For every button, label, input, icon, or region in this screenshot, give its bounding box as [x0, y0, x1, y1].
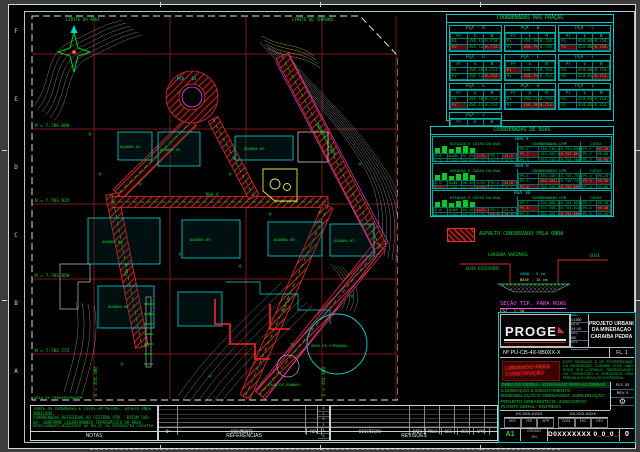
- rua-cell: PV-8: [489, 213, 503, 215]
- title-side-column: FLS. 03REV. 0⚙: [610, 382, 634, 410]
- revisoes-rows: [331, 406, 497, 427]
- stamp-cells: DATAESCREV: [558, 418, 608, 428]
- praca-cell: 354.728,15: [467, 45, 484, 51]
- site-plan-svg: LIMITE DA ÁREALIMITE DO TERRENOPÇA - 01Q…: [30, 14, 398, 402]
- rua-cell: 354.302,90: [539, 201, 559, 206]
- praca-table-values: PTENP1354.712,408.754.061,22P2354.728,15…: [450, 33, 501, 51]
- rua-cell: 1+00: [447, 213, 461, 215]
- map-label: LIMITE DO TERRENO: [292, 17, 334, 22]
- rua-mid-row: PV-1354.210,458.753.850,12: [519, 147, 580, 152]
- rua-mid-table: PV-7354.302,908.753.655,28PV-8354.348,35…: [518, 200, 580, 215]
- notas-lines: TODAS AS DIMENSÕES E COTAS EM METROS, EX…: [33, 407, 155, 427]
- stake-glyph: [442, 173, 447, 180]
- rua-cell: 354.158,72: [539, 174, 559, 179]
- rua-cell: 93,65: [596, 211, 611, 215]
- proge-logo-mark: ◣: [558, 325, 564, 334]
- rua-cell: 96,20: [461, 181, 475, 186]
- map-label: QUADRA 01: [120, 144, 141, 149]
- map-label: QUADRA 06: [274, 237, 295, 242]
- praca-cell: 354.848,12: [576, 39, 593, 45]
- praca-data-row: P2354.728,158.754.048,90: [451, 45, 501, 51]
- stamp-group: XX-XXX-XXXXDATAESCREV: [558, 411, 608, 428]
- rua-cell: PV-5: [489, 186, 503, 188]
- fold-tick: [635, 150, 640, 151]
- stake-glyph: [456, 201, 461, 207]
- praca-table-values: PTENP1354.702,178.753.910,58P2354.716,93…: [450, 90, 501, 108]
- rua-cell: i=2%: [475, 159, 489, 161]
- stake-glyphs: [433, 146, 517, 153]
- rua-section-body: ESTACAS E COTAS DA RUAE-00+0097,45i=2%PV…: [433, 142, 611, 161]
- stake-glyph: [442, 200, 447, 207]
- rua-cell: i=2%: [475, 213, 489, 215]
- praca-cell: 8.753.896,30: [484, 102, 501, 108]
- rua-cell: 8.753.792,60: [559, 174, 579, 179]
- praca-cell: 8.754.066,45: [593, 39, 610, 45]
- praca-cell: 8.753.888,15: [593, 102, 610, 108]
- proge-logo: PROGE: [505, 324, 557, 339]
- praca-cell: 354.721,40: [467, 73, 484, 79]
- rua-mid-row: PV-4354.158,728.753.792,60: [519, 174, 580, 179]
- rua-cell: 8.753.698,41: [559, 184, 579, 188]
- praca-cell: 8.753.974,10: [484, 73, 501, 79]
- praca-cell: 8.754.070,18: [538, 39, 555, 45]
- praca-header-row: PTEN: [451, 62, 501, 68]
- map-label: QUADRA 07: [334, 238, 355, 243]
- ownership-note-box: ESTE DESENHO É DE PROPRIEDADE DA MINERAÇ…: [563, 360, 633, 381]
- rua-cell: 96,80: [461, 159, 475, 161]
- rua-cell: 8.753.566,17: [559, 211, 579, 215]
- stake-glyph: [456, 174, 461, 180]
- signature-stamps-row: XX-XXX-XXXXDESVERAPRXX-XXX-XXXXDATAESCRE…: [500, 410, 610, 428]
- frame-row-letter: C: [9, 232, 23, 239]
- praca-cell: 8.753.977,48: [538, 73, 555, 79]
- praca-cell: 354.795,02: [522, 45, 539, 51]
- code-cell: CÓDIGO GH: [521, 429, 548, 441]
- praca-data-row: P2354.790,118.753.977,48: [505, 73, 555, 79]
- praca-cell: P2: [560, 102, 577, 108]
- praca-header-row: PTEN: [451, 33, 501, 39]
- code-bottom: GH: [521, 435, 547, 441]
- praca-cell: 354.775,30: [522, 68, 539, 74]
- side-row: REV. 0: [611, 390, 634, 398]
- praca-header-row: PTEN: [505, 62, 555, 68]
- description-line: REMODELAÇÃO E DRENAGEM - EXPLORAÇÃO: [501, 393, 610, 399]
- rua-right-table: PV-496,20PV-595,55PV-694,80: [581, 173, 611, 188]
- stake-glyph: [449, 176, 454, 180]
- map-label: N = 7.784.000: [35, 123, 70, 129]
- street-section-svg: LARGURA VARIÁVEL GUIA EXISTENTE GUIA CBU…: [458, 248, 610, 300]
- stamp-cells: DESVERAPR: [504, 418, 554, 428]
- drawing-number: D0XXXXXXX 0_0_0_1: [548, 429, 619, 441]
- stamp-cell: DES: [504, 418, 521, 428]
- ruas-block-title: COORDENADAS DE RUAS: [431, 127, 613, 135]
- map-label: N = 7.783.775: [35, 348, 70, 354]
- description-line: OBRA DE PEDRA - EXPANSÃO PARA AS OBRAS: [501, 382, 610, 388]
- stake-glyph: [449, 203, 454, 207]
- proge-logo-box: PROGE ◣: [500, 314, 570, 347]
- stake-glyph: [470, 148, 475, 153]
- praca-cell: P2: [505, 45, 522, 51]
- rua-mid-row: PV-6354.250,638.753.698,41: [519, 184, 580, 188]
- rua-cell: PV-6: [582, 184, 597, 188]
- referencias-section: 543210 NºDOCUMENTOREV REFERÊNCIAS: [158, 405, 330, 441]
- rua-mid-row: PV-9354.393,818.753.566,17: [519, 211, 580, 215]
- asphalt-swatch-label: ASFALTO CONSERVADO PELA OBRA: [479, 231, 563, 237]
- praca-cell: 8.753.985,06: [593, 68, 610, 74]
- map-label: QUADRA 03: [244, 146, 265, 151]
- praca-coordinates-block: COORDENADAS DAS PRAÇAS PÇA - APTENP1354.…: [446, 14, 614, 121]
- praca-cell: 354.780,55: [522, 39, 539, 45]
- praca-table-values: PTENP1354.706,888.753.988,35P2354.721,40…: [450, 61, 501, 79]
- map-label: LIMITE DA ÁREA: [66, 17, 100, 22]
- title-info-column: ESC.1:1000DATAXX-XXDES.MCREV.0: [570, 314, 588, 347]
- title-footer-row: A1 CÓDIGO GH D0XXXXXXX 0_0_0_1 0: [500, 428, 634, 441]
- stake-glyph: [449, 149, 454, 153]
- praca-cell: 8.754.055,60: [538, 45, 555, 51]
- praca-cell: 354.843,95: [576, 68, 593, 74]
- rua-mid-row: PV-7354.302,908.753.655,28: [519, 201, 580, 206]
- stake-glyph: [456, 147, 461, 153]
- rua-cell: E-1: [434, 159, 448, 161]
- rua-left-sub: ESTACAS E COTAS DA RUAE-00+0096,20i=3%PV…: [433, 169, 517, 188]
- section-label-base: BASE - 15 cm: [520, 277, 548, 282]
- site-plan-map: LIMITE DA ÁREALIMITE DO TERRENOPÇA - 01Q…: [30, 14, 398, 402]
- section-label-left: GUIA EXISTENTE: [466, 266, 500, 271]
- rua-mid-row: PV-2354.265,808.753.801,34: [519, 152, 580, 157]
- logo-underline: [504, 339, 566, 341]
- rua-cell: 1+00: [447, 186, 461, 188]
- frame-row-letter: B: [9, 300, 23, 307]
- stamp-group: XX-XXX-XXXXDESVERAPR: [504, 411, 554, 428]
- stake-glyph: [442, 146, 447, 153]
- rua-cell: 8.753.655,28: [559, 201, 579, 206]
- rua-section-body: ESTACAS E COTAS DA RUAE-00+0095,10i=2%PV…: [433, 196, 611, 215]
- praca-block-title: COORDENADAS DAS PRAÇAS: [447, 15, 613, 23]
- rua-cell: 354.250,63: [539, 184, 559, 188]
- praca-cell: P2: [560, 73, 577, 79]
- stamp-cell: VER: [521, 418, 538, 428]
- stake-glyph: [463, 173, 468, 180]
- stake-glyph: [470, 202, 475, 207]
- rua-section: RUA 10ESTACAS E COTAS DA RUAE-00+0095,10…: [432, 190, 612, 216]
- section-label-right: GUIA: [590, 253, 600, 258]
- map-label: ÁREA DE EXPANSÃO: [311, 343, 348, 348]
- stamp-cell: REV: [591, 418, 608, 428]
- praca-table: PÇA - APTENP1354.712,408.754.061,22P2354…: [449, 25, 502, 52]
- praca-header-row: PTEN: [505, 33, 555, 39]
- map-label: QUADRA 04: [102, 239, 123, 244]
- logo-red-underline: [504, 342, 566, 343]
- praca-cell: P2: [505, 102, 522, 108]
- praca-cell: P2: [505, 73, 522, 79]
- rua-cell: 94,40: [596, 206, 611, 211]
- rua-cell: PV-9: [582, 211, 597, 215]
- rua-right-row: PV-993,65: [582, 211, 611, 215]
- fold-tick: [2, 150, 7, 151]
- rua-cell: 354.210,45: [539, 147, 559, 152]
- stamp-cell: DATA: [558, 418, 575, 428]
- rua-cell: 10,5: [503, 213, 517, 215]
- praca-table-values: PTENP1354.843,958.753.985,06P2354.858,60…: [559, 61, 610, 79]
- stake-glyphs: [433, 173, 517, 180]
- rua-left-row: E-11+0096,80i=2%PV-214,0: [434, 159, 517, 161]
- praca-table: PÇA - EPTENP1354.775,308.753.992,72P2354…: [504, 54, 557, 81]
- stake-glyph: [463, 146, 468, 153]
- praca-table-values: PTENP1354.780,558.754.070,18P2354.795,02…: [505, 33, 556, 51]
- rua-cell: 1+00: [447, 159, 461, 161]
- rua-right-sub: COTASPV-795,10PV-894,40PV-993,65: [580, 196, 611, 215]
- rua-cell: 354.265,80: [539, 152, 559, 157]
- nota-line: NIVELAMENTO REFERIDO AO RN-01 DA MINERAÇ…: [33, 425, 155, 427]
- paper-format-cell: A1: [500, 429, 521, 441]
- document-number-strip: Nº PU-CB-4X-0B0XX-X FL. 1: [500, 347, 634, 358]
- rua-mid-row: PV-3354.310,228.753.760,90: [519, 157, 580, 161]
- rua-mid-sub: COORDENADAS UTMPV-4354.158,728.753.792,6…: [517, 169, 580, 188]
- title-info-row: DATAXX-XX: [571, 323, 588, 332]
- praca-cell: P2: [451, 102, 468, 108]
- rua-left-sub: ESTACAS E COTAS DA RUAE-00+0095,10i=2%PV…: [433, 196, 517, 215]
- praca-data-row: P2354.861,778.754.050,23: [560, 45, 610, 51]
- fold-tick: [480, 2, 481, 7]
- project-title-line: CARAÍBA PEDRA: [589, 334, 634, 341]
- cad-sheet: FEDCBA: [0, 0, 640, 452]
- roundabout-inner-circle: [182, 87, 202, 107]
- praca-table-values: PTENP1354.775,308.753.992,72P2354.790,11…: [505, 61, 556, 79]
- fold-tick: [2, 300, 7, 301]
- rua-cell: 96,20: [596, 174, 611, 179]
- rua-cell: PV-2: [489, 159, 503, 161]
- frame-row-letter: E: [9, 96, 23, 103]
- praca-cell: 8.754.061,22: [484, 39, 501, 45]
- info-value: XX-XX: [571, 327, 588, 331]
- white-irregular-building: [60, 264, 90, 309]
- praca-cell: 354.790,11: [522, 73, 539, 79]
- rua-cell: PV-3: [582, 157, 597, 161]
- rua-cell: 14,0: [503, 159, 517, 161]
- stamp-date-label: XX-XXX-XXXX: [504, 411, 554, 418]
- praca-table-values: PTENP1354.838,668.753.902,40P2354.853,33…: [559, 90, 610, 108]
- praca-data-row: P2354.795,028.754.055,60: [505, 45, 555, 51]
- rua-right-sub: COTASPV-197,45PV-296,80PV-395,95: [580, 142, 611, 161]
- side-row: FLS. 03: [611, 382, 634, 390]
- praca-table: PÇA - CPTENP1354.848,128.754.066,45P2354…: [558, 25, 611, 52]
- stamp-date-label: XX-XXX-XXXX: [558, 411, 608, 418]
- rua-cell: E-1: [434, 186, 448, 188]
- title-block: PROGE ◣ ESC.1:1000DATAXX-XXDES.MCREV.0 P…: [498, 312, 636, 443]
- rua-cell: 95,10: [461, 208, 475, 213]
- stake-glyphs: [433, 200, 517, 207]
- notas-header: NOTAS: [31, 431, 157, 440]
- rua-cell: PV-9: [519, 211, 539, 215]
- rua-right-sub: COTASPV-496,20PV-595,55PV-694,80: [580, 169, 611, 188]
- praca-header-row: PTEN: [560, 62, 610, 68]
- rua-right-table: PV-795,10PV-894,40PV-993,65: [581, 200, 611, 215]
- rua-left-table: E-00+0095,10i=2%PV-712,0E-11+0094,40i=2%…: [433, 207, 517, 215]
- praca-header-row: PTEN: [560, 33, 610, 39]
- rua-cell: E-1: [434, 213, 448, 215]
- section-label-cbuq: CBUQ - 5 cm: [520, 271, 546, 276]
- section-pavement-fill: [498, 284, 570, 292]
- map-label: QUADRA 02: [160, 147, 181, 152]
- praca-table-values: PTENP1354.848,128.754.066,45P2354.861,77…: [559, 33, 610, 51]
- praca-cell: 8.753.970,84: [593, 73, 610, 79]
- praca-cell: 8.754.050,23: [593, 45, 610, 51]
- drawing-description-lines: OBRA DE PEDRA - EXPANSÃO PARA AS OBRASIL…: [501, 382, 610, 410]
- ruas-sections: RUA 4ESTACAS E COTAS DA RUAE-00+0097,45i…: [431, 136, 613, 216]
- praca-cell: 354.716,93: [467, 102, 484, 108]
- rua-cell: PV-6: [519, 184, 539, 188]
- rua-right-row: PV-395,95: [582, 157, 611, 161]
- rua-mid-row: PV-5354.204,188.753.744,05: [519, 179, 580, 184]
- stamp-cell: ESC: [575, 418, 592, 428]
- praca-cell: 354.706,88: [467, 68, 484, 74]
- rua-cell: 94,40: [461, 213, 475, 215]
- rua-left-table: E-00+0097,45i=2%PV-112,5E-11+0096,80i=2%…: [433, 153, 517, 161]
- praca-cell: P2: [560, 45, 577, 51]
- praca-data-row: P2354.716,938.753.896,30: [451, 102, 501, 108]
- section-detail-title: SEÇÃO TIP. PARA RUAS: [500, 301, 566, 309]
- rua-cell: 8.753.801,34: [559, 152, 579, 157]
- approval-stamp-text: LIBERADO PARA CONSTRUÇÃO: [503, 361, 560, 381]
- praca-header-row: PTEN: [451, 91, 501, 97]
- section-dim-top: LARGURA VARIÁVEL: [488, 252, 529, 257]
- praca-cell: 354.858,60: [576, 73, 593, 79]
- title-info-row: ESC.1:1000: [571, 314, 588, 323]
- street-section-detail: LARGURA VARIÁVEL GUIA EXISTENTE GUIA CBU…: [458, 248, 610, 300]
- frame-row-letter: A: [9, 368, 23, 375]
- praca-cell: 8.753.902,40: [593, 97, 610, 103]
- rua-cell: 97,45: [461, 154, 475, 159]
- revisoes-header: REVISÕES: [331, 431, 497, 440]
- rua-left-sub: ESTACAS E COTAS DA RUAE-00+0097,45i=2%PV…: [433, 142, 517, 161]
- north-arrow-icon: [58, 25, 90, 72]
- rua-mid-row: PV-8354.348,358.753.610,72: [519, 206, 580, 211]
- stake-glyph: [435, 202, 440, 207]
- fold-tick: [320, 2, 321, 7]
- rua-cell: 95,95: [596, 157, 611, 161]
- approval-stamp: LIBERADO PARA CONSTRUÇÃO: [502, 361, 560, 381]
- trim-line: [90, 449, 560, 450]
- fold-tick: [635, 300, 640, 301]
- fold-tick: [160, 2, 161, 7]
- gear-icon: ⚙: [611, 398, 634, 406]
- map-label: QUADRA 05: [190, 237, 211, 242]
- stake-glyph: [435, 175, 440, 180]
- praca-cell: P2: [451, 45, 468, 51]
- stake-glyph: [435, 148, 440, 153]
- praca-table: PÇA - FPTENP1354.843,958.753.985,06P2354…: [558, 54, 611, 81]
- praca-table: PÇA - BPTENP1354.780,558.754.070,18P2354…: [504, 25, 557, 52]
- rua-section-body: ESTACAS E COTAS DA RUAE-00+0096,20i=3%PV…: [433, 169, 611, 188]
- frame-row-letter: F: [9, 28, 23, 35]
- praca-table: PÇA - HPTENP1354.770,448.753.905,12P2354…: [504, 83, 557, 110]
- rua-cell: 96,80: [596, 152, 611, 157]
- project-title-box: PROJETO URBANÍSTICODA MINERAÇÃOCARAÍBA P…: [588, 314, 634, 347]
- rua-right-table: PV-197,45PV-296,80PV-395,95: [581, 146, 611, 161]
- map-label: RUA 4: [206, 192, 219, 197]
- praca-cell: 354.853,33: [576, 102, 593, 108]
- rua-cell: PV-3: [519, 157, 539, 161]
- praca-header-row: PTEN: [505, 91, 555, 97]
- revisoes-section: DESCRIÇÃODATAPROJ.DES.VER.APR. REVISÕES: [330, 405, 498, 441]
- map-label: QUADRA 08: [108, 304, 129, 309]
- rua-cell: 354.348,35: [539, 206, 559, 211]
- rua-cell: 8.753.610,72: [559, 206, 579, 211]
- praca-table: PÇA - GPTENP1354.702,178.753.910,58P2354…: [449, 83, 502, 110]
- stake-glyph: [463, 200, 468, 207]
- praca-data-row: P2354.858,608.753.970,84: [560, 73, 610, 79]
- praca-data-row: P2354.853,338.753.888,15: [560, 102, 610, 108]
- rua-cell: 8.753.744,05: [559, 179, 579, 184]
- praca-cell: 354.785,20: [522, 102, 539, 108]
- rua-cell: 13,5: [503, 186, 517, 188]
- rua-left-row: E-11+0095,55i=3%PV-513,5: [434, 186, 517, 188]
- title-info-row: DES.MC: [571, 332, 588, 341]
- praca-cell: 354.861,77: [576, 45, 593, 51]
- praca-cell: 354.770,44: [522, 97, 539, 103]
- rua-cell: 354.204,18: [539, 179, 559, 184]
- praca-data-row: P2354.721,408.753.974,10: [451, 73, 501, 79]
- rua-mid-sub: COORDENADAS UTMPV-7354.302,908.753.655,2…: [517, 196, 580, 215]
- asphalt-hatch-swatch: [447, 228, 475, 242]
- map-label: ÁREA DE TERRAPLENAGEM: [34, 395, 83, 400]
- praca-header-row: PTEN: [451, 120, 501, 126]
- rua-cell: i=3%: [475, 186, 489, 188]
- praca-cell: 8.753.988,35: [484, 68, 501, 74]
- rua-right-row: PV-694,80: [582, 184, 611, 188]
- rua-cell: 94,80: [596, 184, 611, 188]
- praca-cell: 8.753.992,72: [538, 68, 555, 74]
- praca-table-values: PTENP1354.770,448.753.905,12P2354.785,20…: [505, 90, 556, 108]
- rua-mid-table: PV-1354.210,458.753.850,12PV-2354.265,80…: [518, 146, 580, 161]
- rua-cell: 95,55: [461, 186, 475, 188]
- map-label: E = 354.100: [93, 367, 99, 396]
- referencias-rows: [159, 406, 329, 427]
- ruas-coordinates-block: COORDENADAS DE RUAS RUA 4ESTACAS E COTAS…: [430, 126, 614, 217]
- rua-section: RUA 4ESTACAS E COTAS DA RUAE-00+0097,45i…: [432, 136, 612, 162]
- praca-table: PÇA - DPTENP1354.706,888.753.988,35P2354…: [449, 54, 502, 81]
- praca-cell: 354.702,17: [467, 97, 484, 103]
- rua-mid-table: PV-4354.158,728.753.792,60PV-5354.204,18…: [518, 173, 580, 188]
- stake-glyph: [470, 175, 475, 180]
- praca-table: PÇA - IPTENP1354.838,668.753.902,40P2354…: [558, 83, 611, 110]
- praca-cell: 8.753.910,58: [484, 97, 501, 103]
- revision-cell: 0: [619, 429, 634, 441]
- praca-data-row: P2354.785,208.753.890,77: [505, 102, 555, 108]
- praca-cell: 354.838,66: [576, 97, 593, 103]
- rua-cell: 95,10: [596, 201, 611, 206]
- rua-left-table: E-00+0096,20i=3%PV-411,0E-11+0095,55i=3%…: [433, 180, 517, 188]
- praca-cell: 8.753.905,12: [538, 97, 555, 103]
- rua-mid-sub: COORDENADAS UTMPV-1354.210,458.753.850,1…: [517, 142, 580, 161]
- document-number: Nº PU-CB-4X-0B0XX-X: [500, 348, 609, 357]
- praca-tables-grid: PÇA - APTENP1354.712,408.754.061,22P2354…: [447, 23, 613, 141]
- rua-left-row: E-11+0094,40i=2%PV-810,5: [434, 213, 517, 215]
- rua-cell: 354.310,22: [539, 157, 559, 161]
- map-label: N = 7.783.925: [35, 198, 70, 204]
- map-label: N = 7.783.850: [35, 273, 70, 279]
- map-label: CASA DE BOMBAS: [268, 382, 301, 387]
- rua-cell: 95,55: [596, 179, 611, 184]
- praca-header-row: PTEN: [560, 91, 610, 97]
- notas-section: TODAS AS DIMENSÕES E COTAS EM METROS, EX…: [30, 405, 158, 441]
- praca-cell: P2: [451, 73, 468, 79]
- rua-cell: 8.753.760,90: [559, 157, 579, 161]
- info-value: 1:1000: [571, 318, 588, 322]
- ownership-note-text: ESTE DESENHO É DE PROPRIEDADE DA MINERAÇ…: [563, 360, 633, 380]
- referencias-header: REFERÊNCIAS: [159, 431, 329, 440]
- rua-cell: 354.393,81: [539, 211, 559, 215]
